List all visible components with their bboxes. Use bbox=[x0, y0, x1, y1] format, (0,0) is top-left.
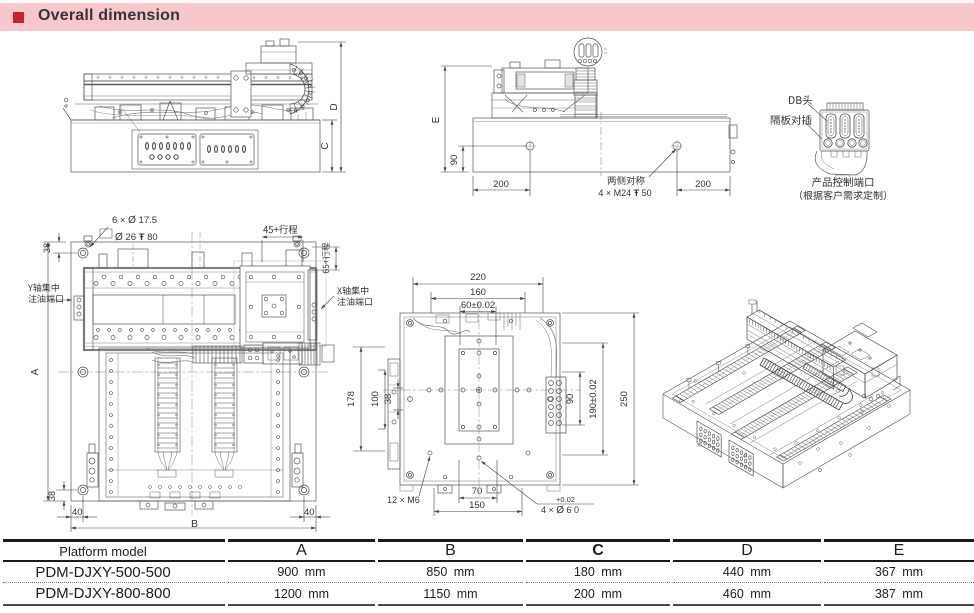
svg-text:E: E bbox=[431, 116, 442, 123]
svg-text:90: 90 bbox=[449, 155, 460, 166]
svg-text:6 × Ø 17.5: 6 × Ø 17.5 bbox=[112, 215, 157, 226]
svg-text:200: 200 bbox=[695, 179, 711, 190]
svg-text:A: A bbox=[30, 368, 41, 375]
svg-text:90: 90 bbox=[565, 394, 576, 405]
svg-text:178: 178 bbox=[346, 391, 357, 407]
svg-text:60±0.02: 60±0.02 bbox=[461, 300, 495, 311]
svg-text:190±0.02: 190±0.02 bbox=[588, 379, 599, 419]
svg-text:38: 38 bbox=[42, 243, 52, 253]
svg-text:B: B bbox=[191, 518, 198, 530]
svg-text:38: 38 bbox=[383, 394, 394, 405]
svg-text:38: 38 bbox=[47, 491, 57, 501]
svg-text:250: 250 bbox=[619, 391, 630, 407]
svg-text:4 × Ø 6 0: 4 × Ø 6 0 bbox=[541, 505, 579, 516]
svg-text:150: 150 bbox=[469, 500, 485, 511]
svg-text:12 × M6: 12 × M6 bbox=[387, 495, 420, 505]
svg-text:220: 220 bbox=[470, 272, 486, 283]
svg-text:160: 160 bbox=[470, 287, 486, 298]
svg-text:D: D bbox=[329, 103, 340, 110]
svg-text:+0.02: +0.02 bbox=[556, 495, 575, 504]
svg-text:Ø 26 Ŧ 80: Ø 26 Ŧ 80 bbox=[115, 232, 158, 243]
svg-text:40: 40 bbox=[304, 507, 315, 518]
svg-text:C: C bbox=[320, 142, 331, 149]
svg-text:40: 40 bbox=[72, 507, 83, 518]
svg-text:200: 200 bbox=[493, 179, 509, 190]
svg-text:4 × M24 Ŧ 50: 4 × M24 Ŧ 50 bbox=[598, 188, 651, 198]
svg-text:70: 70 bbox=[472, 486, 483, 497]
svg-text:100: 100 bbox=[370, 391, 381, 407]
